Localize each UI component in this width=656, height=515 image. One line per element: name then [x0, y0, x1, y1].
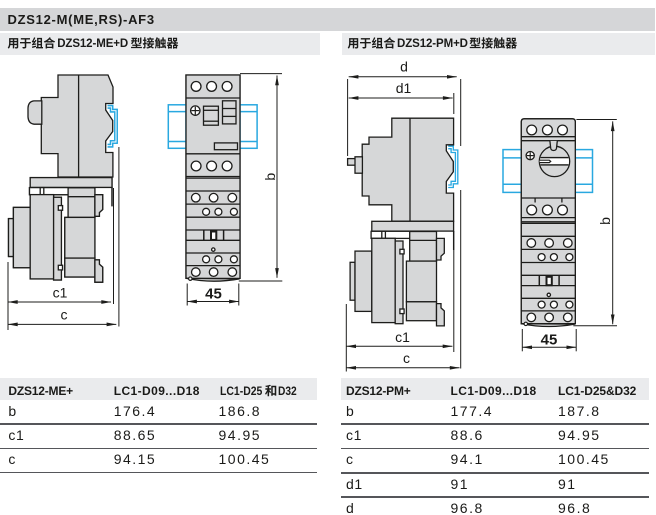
svg-text:b: b — [262, 173, 278, 181]
svg-text:c: c — [61, 307, 68, 323]
svg-text:45: 45 — [205, 286, 222, 303]
svg-text:c: c — [403, 350, 410, 366]
svg-text:d1: d1 — [396, 80, 412, 96]
svg-text:b: b — [597, 217, 613, 225]
svg-text:c1: c1 — [395, 329, 410, 345]
svg-text:c1: c1 — [53, 285, 68, 301]
svg-text:45: 45 — [541, 331, 558, 348]
svg-text:d: d — [400, 59, 408, 75]
